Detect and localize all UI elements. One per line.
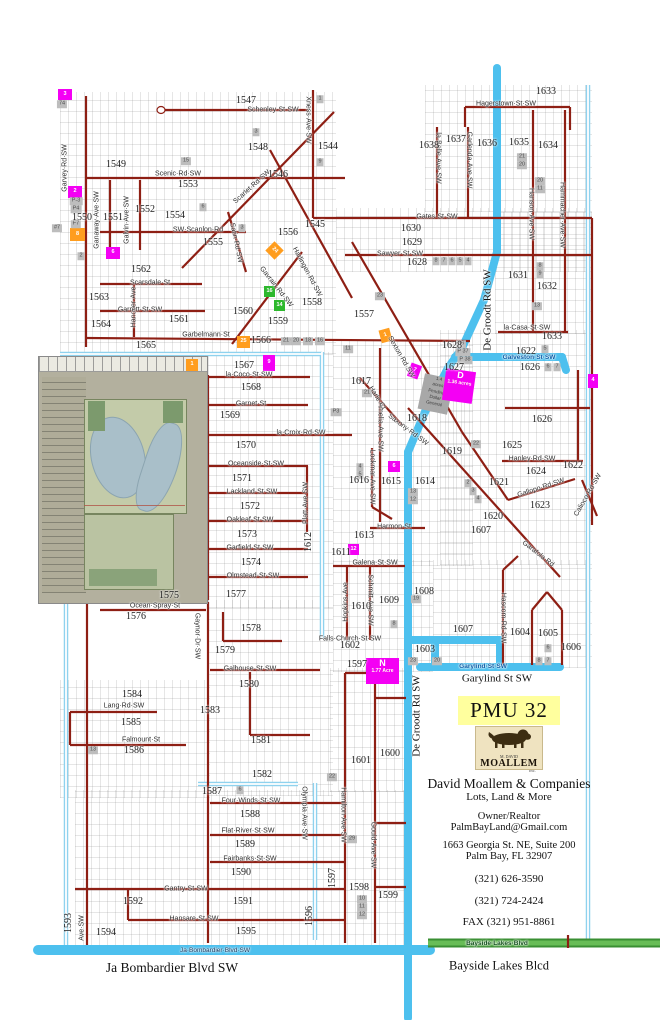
lot-tag: 9 [316, 158, 323, 166]
aerial-parcel-rows [42, 377, 86, 593]
street-label: Hamilton·Ave·SW [340, 787, 347, 843]
section-label: 1599 [378, 891, 398, 901]
section-label: 1563 [89, 293, 109, 303]
section-label: 1603 [415, 645, 435, 655]
section-label: 1573 [237, 530, 257, 540]
section-label: 1620 [483, 512, 503, 522]
lot-tag: 11 [343, 345, 353, 353]
lot-tag: 8 [536, 262, 543, 270]
section-label: 1621 [489, 478, 509, 488]
section-label: 1622 [516, 347, 536, 357]
lot-tag: 16 [315, 337, 325, 345]
section-label: 1572 [240, 502, 260, 512]
street-label: Fairbanks·St·SW [223, 856, 276, 863]
aerial-boundary-line [84, 505, 185, 506]
lot-tag: 12 [408, 496, 418, 504]
section-label: 1628 [442, 341, 462, 351]
street-label: Lackland·St·SW [227, 489, 278, 496]
street-label: Galhouse·St·SW [224, 666, 277, 673]
section-label: 1615 [381, 477, 401, 487]
street-label: Galena·St·SW [352, 560, 397, 567]
street-label: Ocean·Spray·St [130, 603, 180, 610]
lot-marker: 2 [68, 186, 82, 198]
lot-tag: 6 [236, 786, 243, 794]
lot-tag: 11 [357, 903, 367, 911]
company-name: David Moallem & Companies [420, 776, 598, 792]
section-label: 1613 [354, 531, 374, 541]
street-label: Garylind·St·SW [459, 664, 507, 671]
road-segment [532, 592, 547, 610]
lot-tag: 6 [544, 644, 551, 652]
lot-tag: 21 [517, 153, 527, 161]
street-label: Falmount·St [122, 737, 160, 744]
lot-marker: 3 [58, 89, 72, 100]
lot-tag: 22 [471, 440, 481, 448]
lot-tag: 8 [390, 620, 397, 628]
section-label: 1585 [121, 718, 141, 728]
lot-tag: #7 [52, 224, 62, 232]
lot-tag: 74 [57, 100, 67, 108]
lot-tag: 23 [375, 292, 385, 300]
section-label: 1583 [200, 706, 220, 716]
street-label: Gates·St·SW [416, 214, 457, 221]
section-label: 1626 [532, 415, 552, 425]
section-label: 1622 [563, 461, 583, 471]
section-label: 1554 [165, 211, 185, 221]
lot-tag: 20 [535, 177, 545, 185]
company-tagline: Lots, Land & More [420, 791, 598, 804]
lot-tag: 10 [357, 895, 367, 903]
section-label: 1574 [241, 558, 261, 568]
lot-tag: 3 [252, 128, 259, 136]
road-segment [503, 556, 518, 570]
section-label: 1575 [159, 591, 179, 601]
section-label: 1614 [415, 477, 435, 487]
lot-tag: 18 [303, 337, 313, 345]
street-label: Oceanside·St·SW [228, 461, 284, 468]
section-label: 1589 [235, 840, 255, 850]
section-label: 1576 [126, 612, 146, 622]
section-label: 1561 [169, 315, 189, 325]
lot-tag: 3 [469, 487, 476, 495]
street-label: Flat·River·St·SW [222, 828, 275, 835]
road-segment [232, 252, 302, 344]
lion-icon [477, 727, 541, 749]
lot-tag: 12 [357, 911, 367, 919]
section-label: 1618 [407, 414, 427, 424]
section-label: 1602 [340, 641, 360, 651]
street-label: Garlenda·Ave·SW [466, 132, 473, 189]
section-label: 1609 [379, 596, 399, 606]
street-label: Hammacher·Ave·SW [559, 182, 566, 248]
street-label: Garnet·St [236, 401, 266, 408]
section-label: 1586 [124, 746, 144, 756]
section-label: 1570 [236, 441, 256, 451]
section-label: 1630 [401, 224, 421, 234]
street-label: SW·Scanlon·Rd [173, 227, 223, 234]
street-label: Garvey·Rd·SW [62, 144, 69, 191]
section-label: 1612 [304, 532, 314, 552]
street-label: Bayside·Lakes·Blvd [466, 941, 528, 948]
lot-tag: 3 [238, 224, 245, 232]
street-label: Gaynor·Dr·SW [194, 613, 201, 659]
street-label: De Groodt Rd SW [483, 269, 494, 351]
street-label: Lockmar·Ave·SW [369, 450, 376, 505]
street-label: Hascom·Rd·SW [500, 593, 507, 644]
lot-tag: 13 [88, 746, 98, 754]
lot-d: D1.36 acres [442, 368, 476, 404]
street-label: Four·Winds·St·SW [222, 798, 281, 805]
section-label: 1549 [106, 160, 126, 170]
section-label: 1638 [419, 141, 439, 151]
section-label: 1546 [268, 170, 288, 180]
street-label: Oakleaf·St·SW [227, 517, 274, 524]
lot-tag: 5 [456, 257, 463, 265]
section-label: 1637 [446, 135, 466, 145]
fax-number: FAX (321) 951-8861 [420, 916, 598, 929]
section-label: 1632 [537, 282, 557, 292]
section-label: 1607 [471, 526, 491, 536]
aerial-green-patch [88, 401, 105, 431]
section-label: 1633 [536, 87, 556, 97]
lot-tag: P3 [331, 408, 342, 416]
section-label: 1595 [236, 927, 256, 937]
street-label: Olympia·Ave·SW [301, 786, 308, 840]
logo-inc: INC. [476, 769, 542, 773]
lot-tag: 15 [181, 157, 191, 165]
plat-map: 328624251197461216141.4acresPendingDolla… [0, 0, 660, 1020]
lot-tag: 29 [347, 835, 357, 843]
lot-tag: 4 [356, 463, 363, 471]
section-label: 1545 [305, 220, 325, 230]
email: PalmBayLand@Gmail.com [420, 822, 598, 834]
section-label: 1580 [239, 680, 259, 690]
lot-tag: 7 [440, 257, 447, 265]
lot-marker: 9 [263, 355, 275, 371]
lot-marker: 1 [186, 359, 198, 371]
street-label: la·Coco·St·SW [226, 372, 273, 379]
section-label: 1606 [561, 643, 581, 653]
section-label: 1619 [442, 447, 462, 457]
section-label: 1567 [234, 361, 254, 371]
road-end-circle [157, 107, 165, 114]
section-label: 1578 [241, 624, 261, 634]
section-label: 1588 [240, 810, 260, 820]
lot-tag: 8 [535, 657, 542, 665]
section-label: 1592 [123, 897, 143, 907]
section-label: 1555 [203, 238, 223, 248]
section-label: 1597 [328, 868, 338, 888]
section-label: 1560 [233, 307, 253, 317]
section-label: 1634 [538, 141, 558, 151]
section-label: 1601 [351, 756, 371, 766]
section-label: 1633 [542, 332, 562, 342]
section-label: 1631 [508, 271, 528, 281]
street-label: Ja·Bombardier·Blvd·SW [180, 948, 250, 955]
street-label: Lang·Rd·SW [104, 703, 144, 710]
lot-tag: 23 [408, 657, 418, 665]
street-label: Platt·Ave·SW [303, 482, 310, 524]
street-label: Scenic·Rd·SW [155, 171, 201, 178]
street-label: Garylind St SW [462, 674, 532, 685]
section-label: 1582 [252, 770, 272, 780]
lot-n: N1.77 Acre [366, 658, 399, 684]
aerial-header-strip [39, 357, 207, 372]
section-label: 1590 [231, 868, 251, 878]
street-label: Hanson·Ave·SW [528, 188, 535, 240]
aerial-inset [38, 356, 208, 604]
lot-tag: 5 [541, 345, 548, 353]
label-bayside-lakes-blvd: Bayside Lakes Blcd [449, 959, 549, 974]
section-label: 1547 [236, 96, 256, 106]
label-ja-bombardier-blvd: Ja Bombardier Blvd SW [106, 960, 238, 976]
lot-tag: 2 [77, 252, 84, 260]
section-label: 1559 [268, 317, 288, 327]
phone-1: (321) 626-3590 [420, 873, 598, 886]
info-panel: PMU 32 M. DAVID MOALLEM INC. David Moall… [420, 690, 598, 938]
road-segment [562, 357, 566, 370]
street-label: Hagerstown·St·SW [476, 101, 536, 108]
lot-marker: 8 [70, 228, 85, 241]
section-label: 1579 [215, 646, 235, 656]
section-label: 1584 [122, 690, 142, 700]
section-label: 1600 [380, 749, 400, 759]
section-label: 1597 [347, 660, 367, 670]
section-label: 1556 [278, 228, 298, 238]
street-label: Gantry·St·SW [164, 886, 208, 893]
section-label: 1566 [251, 336, 271, 346]
street-label: Scarsdale·St [130, 280, 170, 287]
lot-tag: 1 [316, 95, 323, 103]
street-label: Olmstead·St·SW [227, 573, 280, 580]
lot-tag: 11 [535, 185, 545, 193]
section-label: 1627 [444, 363, 464, 373]
section-label: 1616 [349, 476, 369, 486]
road-segment [547, 592, 562, 610]
logo-name: MOALLEM [476, 759, 542, 769]
section-label: 1624 [526, 467, 546, 477]
section-label: 1608 [414, 587, 434, 597]
section-label: 1593 [64, 913, 74, 933]
aerial-green-patch [89, 569, 156, 586]
section-label: 1562 [131, 265, 151, 275]
lot-tag: 7 [553, 363, 560, 371]
section-label: 1550 [72, 213, 92, 223]
street-label: Garbelmann·St [182, 332, 229, 339]
section-label: 1569 [220, 411, 240, 421]
pmu-badge: PMU 32 [420, 696, 598, 725]
street-label: Schenley·St·SW [247, 107, 298, 114]
section-label: 1635 [509, 138, 529, 148]
lot-tag: P-3 [70, 197, 83, 205]
section-label: 1623 [530, 501, 550, 511]
section-label: 1557 [354, 310, 374, 320]
section-label: 1552 [135, 205, 155, 215]
section-label: 1551 [103, 213, 123, 223]
phone-2: (321) 724-2424 [420, 895, 598, 908]
section-label: 1604 [510, 628, 530, 638]
lot-tag: 6 [544, 363, 551, 371]
lot-tag: 13 [532, 302, 542, 310]
section-label: 1577 [226, 590, 246, 600]
section-label: 1626 [520, 363, 540, 373]
lot-marker: 25 [237, 336, 250, 348]
section-label: 1564 [91, 320, 111, 330]
section-label: 1591 [233, 897, 253, 907]
lot-tag: 20 [291, 337, 301, 345]
street-label: Schmitt·Ave·SW [367, 574, 374, 625]
section-label: 1629 [402, 238, 422, 248]
section-label: 1607 [453, 625, 473, 635]
section-label: 1594 [96, 928, 116, 938]
section-label: 1610 [351, 602, 371, 612]
lot-marker: 4 [588, 374, 598, 388]
street-label: Gould·Ave·SW [370, 822, 377, 869]
moallem-logo: M. DAVID MOALLEM INC. [475, 726, 543, 770]
aerial-green-patch [163, 401, 183, 423]
lot-tag: 21 [281, 337, 291, 345]
lot-tag: 9 [536, 270, 543, 278]
address-line2: Palm Bay, FL 32907 [420, 851, 598, 863]
lot-tag: 8 [432, 257, 439, 265]
section-label: 1598 [349, 883, 369, 893]
section-label: 1625 [502, 441, 522, 451]
lot-tag: 4 [474, 495, 481, 503]
street-label: Ave·SW [79, 915, 86, 941]
section-label: 1548 [248, 143, 268, 153]
street-label: Garrett·St·SW [118, 307, 162, 314]
road-segment [372, 507, 392, 519]
street-label: Hanley·Rd·SW [509, 456, 556, 463]
section-label: 1596 [305, 906, 315, 926]
street-label: Hopkins·Ave [343, 582, 350, 622]
street-label: Hansare·St·SW [169, 916, 218, 923]
lot-marker: 6 [106, 247, 120, 259]
street-label: Xness·Ave·SW [305, 96, 312, 143]
section-label: 1571 [232, 474, 252, 484]
section-label: 1587 [202, 787, 222, 797]
street-label: Garfield·St·SW [226, 545, 273, 552]
lot-tag: 4 [464, 257, 471, 265]
section-label: 1581 [251, 736, 271, 746]
section-label: 1568 [241, 383, 261, 393]
section-label: 1636 [477, 139, 497, 149]
street-label: Harmon·St [377, 524, 411, 531]
lot-tag: 22 [327, 773, 337, 781]
section-label: 1628 [407, 258, 427, 268]
section-label: 1558 [302, 298, 322, 308]
street-label: la·Croix·Rd·SW [277, 430, 326, 437]
lot-tag: 7 [544, 657, 551, 665]
lot-tag: 20 [517, 161, 527, 169]
lot-tag: 13 [408, 488, 418, 496]
section-label: 1544 [318, 142, 338, 152]
section-label: 1565 [136, 341, 156, 351]
lot-tag: 20 [432, 657, 442, 665]
lot-tag: 6 [199, 203, 206, 211]
street-label: Galvin·Ave·SW [124, 196, 131, 244]
section-label: 1605 [538, 629, 558, 639]
lot-tag: 6 [448, 257, 455, 265]
lot-tag: 2 [464, 479, 471, 487]
section-label: 1553 [178, 180, 198, 190]
section-label: 1617 [351, 377, 371, 387]
street-label: Ganaway·Ave·SW [94, 191, 101, 248]
lot-marker: 6 [388, 461, 400, 472]
section-label: 1611 [331, 548, 351, 558]
